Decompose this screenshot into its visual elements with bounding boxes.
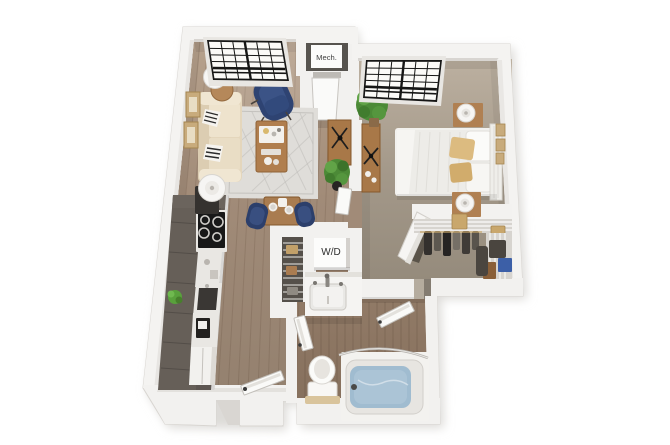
svg-text:Mech.: Mech. bbox=[316, 53, 337, 62]
svg-text:W/D: W/D bbox=[321, 247, 340, 258]
